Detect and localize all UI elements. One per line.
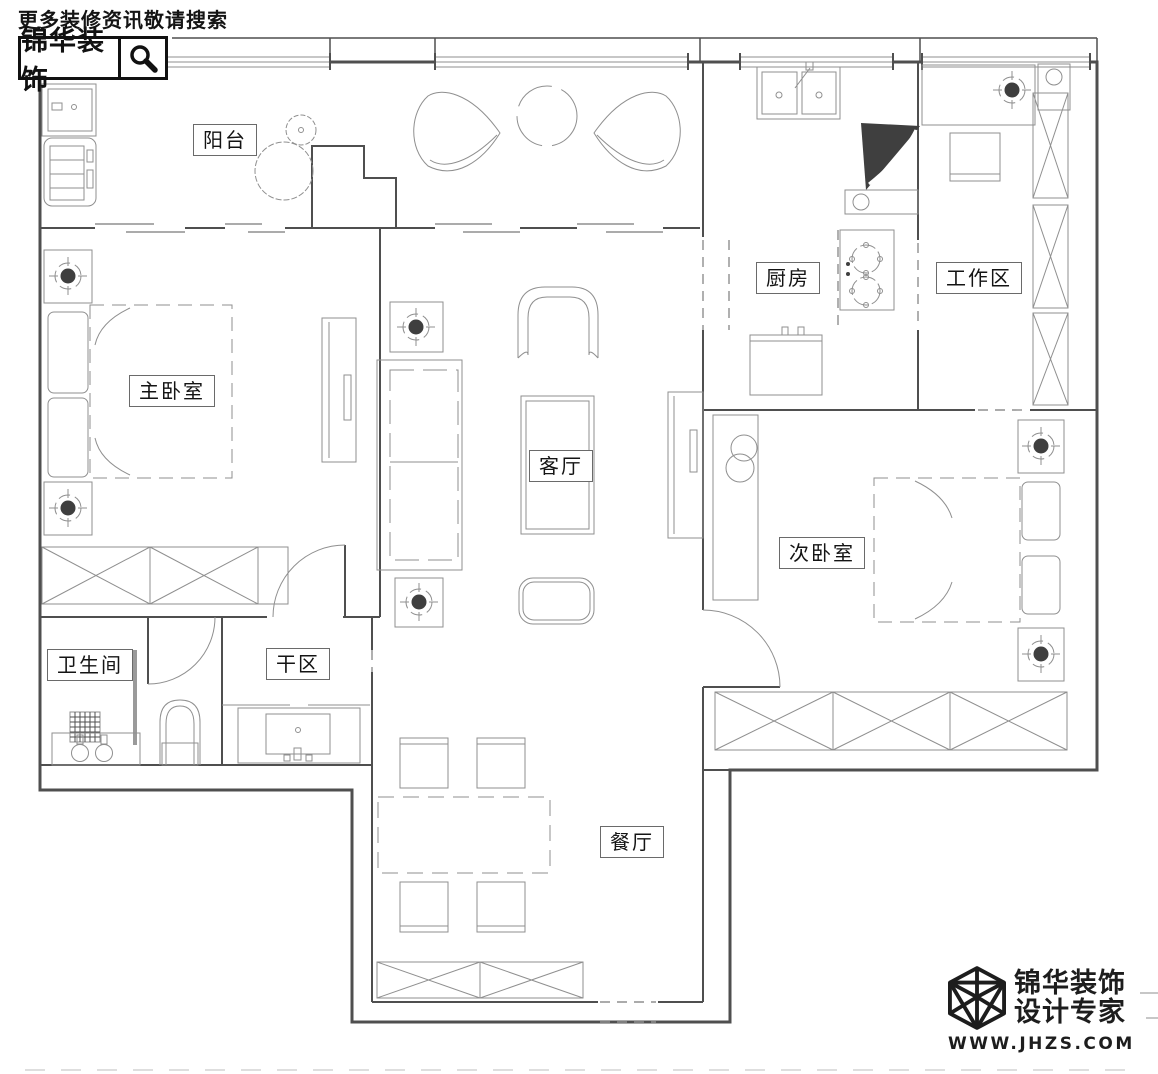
opening-dashes [372,230,1028,1022]
wardrobe-second [715,692,1067,750]
footer-website: WWW.JHZS.COM [948,1034,1144,1054]
room-label-work-area: 工作区 [936,262,1022,294]
slider-door-living-2 [577,224,663,232]
window-balcony-bay [435,53,688,70]
dining-chair [477,882,525,932]
header-brand-name: 锦华装饰 [21,39,118,77]
footer-brand-name: 锦华装饰 [1014,969,1126,998]
leaf-decor-left [414,92,500,171]
dining-chair [477,738,525,788]
tall-wardrobe-column [1033,93,1068,405]
interior-walls [40,62,1097,1002]
side-table [390,302,443,352]
floor-drain [70,712,100,742]
potted-plant-large [255,142,313,200]
work-area-fixtures [922,64,1070,405]
dining-room-furniture [377,738,583,998]
kitchen-fixtures [750,62,920,395]
slider-window-master-2 [225,224,285,232]
window-work-area [922,53,1090,70]
dresser [322,318,356,462]
dining-cabinet [377,962,583,998]
search-icon [121,39,165,77]
master-bedroom-furniture [42,250,356,604]
room-label-master-bedroom: 主卧室 [129,375,215,407]
side-table [395,578,443,627]
room-label-dining-room: 餐厅 [600,826,664,858]
room-label-second-bedroom: 次卧室 [779,537,865,569]
corner-counter [845,123,920,214]
potted-plant-small [286,115,316,145]
room-label-dry-area: 干区 [266,648,330,680]
bathroom-vanity [52,733,140,765]
master-bedroom-door [273,545,345,617]
header-brand-box: 锦华装饰 [18,36,168,80]
bathroom-fixtures [52,700,370,765]
kitchen-cabinet [750,327,822,395]
magnifier-icon [128,43,158,73]
second-bedroom-furniture [713,415,1067,750]
slider-door-living-1 [435,224,520,232]
bathroom-door [148,617,215,684]
room-label-bathroom: 卫生间 [47,649,133,681]
sofa [377,360,462,570]
bed-second [874,478,1060,622]
second-bedroom-door [703,610,780,687]
tv-cabinet [668,392,703,538]
washing-machine [44,138,96,206]
room-label-living-room: 客厅 [529,450,593,482]
double-sink [757,62,840,119]
dining-chair [400,738,448,788]
decor-circle [517,86,577,146]
nightstand [44,482,92,535]
room-label-kitchen: 厨房 [756,262,820,294]
ottoman [519,578,594,624]
wardrobe-master [42,547,288,604]
work-table [950,133,1000,181]
dry-area-vanity [222,705,370,763]
exterior-walls [40,38,1097,1022]
toilet [160,700,200,765]
dining-chair [400,882,448,932]
footer-brand-subtitle: 设计专家 [1014,998,1126,1027]
floor-plan-drawing [0,0,1158,1074]
slider-window-master [95,224,185,232]
desk [713,415,758,600]
work-counter [922,64,1070,125]
nightstand [1018,628,1064,681]
nightstand [1018,420,1064,473]
dining-table [378,797,550,873]
room-label-balcony: 阳台 [193,124,257,156]
floor-plan-page: 阳台 主卧室 客厅 厨房 工作区 次卧室 卫生间 干区 餐厅 更多装修资讯敬请搜… [0,0,1158,1074]
leaf-decor-right [594,92,680,171]
cube-logo-icon [948,966,1006,1030]
gas-stove [840,230,894,310]
armchair [518,287,598,358]
footer-brand: 锦华装饰 设计专家 WWW.JHZS.COM [948,966,1144,1054]
nightstand [44,250,92,303]
door-symbols [148,230,1028,1022]
